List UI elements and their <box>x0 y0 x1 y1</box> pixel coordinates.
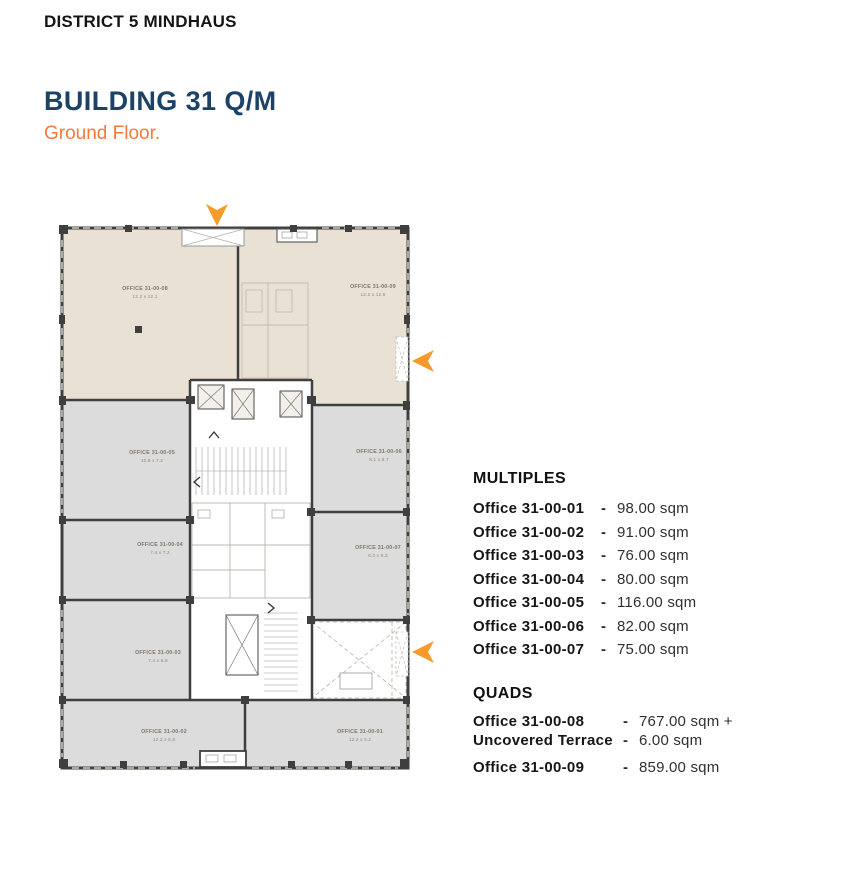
unit-name: Office 31-00-06 <box>473 618 601 635</box>
separator: - <box>601 500 617 517</box>
room-label: OFFICE 31-00-07 <box>355 545 401 551</box>
entrance-arrow-down-icon <box>206 204 228 226</box>
unit-name: Office 31-00-05 <box>473 594 601 611</box>
separator: - <box>623 732 639 749</box>
room-label: OFFICE 31-00-05 <box>129 450 175 456</box>
list-item: Office 31-00-02 - 91.00 sqm <box>473 521 829 545</box>
unit-name: Office 31-00-03 <box>473 547 601 564</box>
unit-area: 82.00 sqm <box>617 618 689 635</box>
quads-heading: QUADS <box>473 685 829 703</box>
list-item: Office 31-00-06 - 82.00 sqm <box>473 615 829 639</box>
unit-area: 91.00 sqm <box>617 524 689 541</box>
separator: - <box>623 759 639 776</box>
separator: - <box>601 571 617 588</box>
list-item: Office 31-00-05 - 116.00 sqm <box>473 591 829 615</box>
separator: - <box>601 594 617 611</box>
unit-name: Office 31-00-07 <box>473 641 601 658</box>
room-dims: 10.8 x 7.2 <box>141 458 163 463</box>
room-label: OFFICE 31-00-04 <box>137 542 183 548</box>
room-dims: 8.1 x 5.7 <box>369 457 389 462</box>
side-entrance-arrow-left-lower-icon <box>412 641 434 663</box>
list-item: Office 31-00-07 - 75.00 sqm <box>473 638 829 662</box>
floor-subtitle: Ground Floor. <box>44 123 160 145</box>
utility-box-bottom <box>200 751 246 767</box>
unit-area: 75.00 sqm <box>617 641 689 658</box>
side-entrance-arrow-left-upper-icon <box>412 350 434 372</box>
unit-name: Office 31-00-02 <box>473 524 601 541</box>
room-label: OFFICE 31-00-02 <box>141 729 187 735</box>
unit-legend: MULTIPLES Office 31-00-01 - 98.00 sqm Of… <box>473 470 829 779</box>
separator: - <box>601 524 617 541</box>
building-title: BUILDING 31 Q/M <box>44 86 277 117</box>
room-dims: 12.2 x 5.2 <box>349 737 371 742</box>
unit-name: Office 31-00-08 <box>473 713 623 730</box>
list-item: Office 31-00-09 - 859.00 sqm <box>473 756 829 780</box>
room-area-quads <box>62 228 408 405</box>
unit-name: Uncovered Terrace <box>473 732 623 749</box>
entrance-canopy <box>182 229 244 246</box>
unit-name: Office 31-00-04 <box>473 571 601 588</box>
room-label: OFFICE 31-00-03 <box>135 650 181 656</box>
brochure-page: { "header": { "project": "DISTRICT 5 MIN… <box>0 0 844 894</box>
unit-name: Office 31-00-01 <box>473 500 601 517</box>
room-dims: 7.4 x 7.2 <box>150 550 170 555</box>
list-item: Office 31-00-03 - 76.00 sqm <box>473 544 829 568</box>
room-dims: 12.2 x 12.5 <box>361 292 386 297</box>
list-item: Office 31-00-04 - 80.00 sqm <box>473 568 829 592</box>
room-dims: 12.2 x 5.8 <box>153 737 175 742</box>
unit-area: 859.00 sqm <box>639 759 719 776</box>
unit-name: Office 31-00-09 <box>473 759 623 776</box>
separator: - <box>623 713 639 730</box>
list-item: Office 31-00-01 - 98.00 sqm <box>473 497 829 521</box>
list-item: Office 31-00-08 - 767.00 sqm + <box>473 712 829 731</box>
room-label: OFFICE 31-00-08 <box>122 286 168 292</box>
floor-plan: OFFICE 31-00-08 12.2 x 12.1 OFFICE 31-00… <box>40 195 445 810</box>
multiples-heading: MULTIPLES <box>473 470 829 488</box>
unit-area: 76.00 sqm <box>617 547 689 564</box>
room-dims: 7.4 x 6.8 <box>148 658 168 663</box>
unit-area: 98.00 sqm <box>617 500 689 517</box>
room-dims: 12.2 x 12.1 <box>133 294 158 299</box>
unit-area: 6.00 sqm <box>639 732 702 749</box>
separator: - <box>601 641 617 658</box>
separator: - <box>601 547 617 564</box>
room-label: OFFICE 31-00-09 <box>350 284 396 290</box>
room-dims: 6.2 x 9.3 <box>368 553 388 558</box>
unit-area: 767.00 sqm + <box>639 713 733 730</box>
list-item: Uncovered Terrace - 6.00 sqm <box>473 731 829 750</box>
unit-area: 116.00 sqm <box>617 594 696 611</box>
project-title: DISTRICT 5 MINDHAUS <box>44 12 237 32</box>
separator: - <box>601 618 617 635</box>
floor-plan-svg: OFFICE 31-00-08 12.2 x 12.1 OFFICE 31-00… <box>40 195 445 810</box>
room-label: OFFICE 31-00-01 <box>337 729 383 735</box>
unit-area: 80.00 sqm <box>617 571 689 588</box>
room-label: OFFICE 31-00-06 <box>356 449 402 455</box>
quads-section: QUADS Office 31-00-08 - 767.00 sqm + Unc… <box>473 685 829 780</box>
